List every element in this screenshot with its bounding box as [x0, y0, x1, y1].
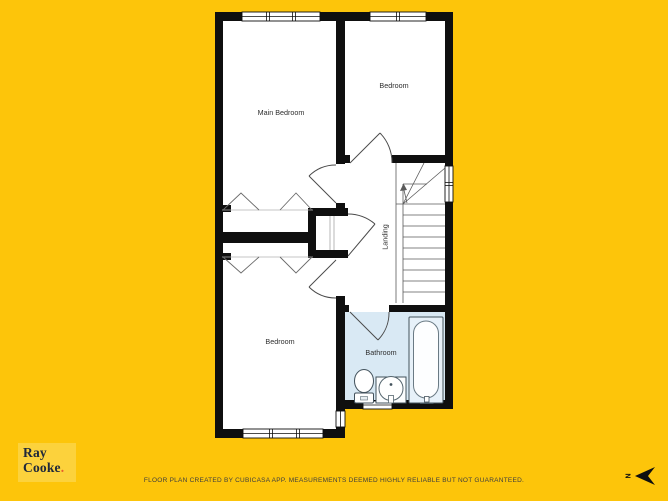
label-main-bedroom: Main Bedroom	[258, 108, 305, 117]
label-bathroom: Bathroom	[365, 348, 396, 357]
logo-dot: .	[61, 460, 65, 475]
page-background: Main Bedroom Bedroom Landing Bedroom Bat…	[0, 0, 668, 501]
window-main-bedroom	[242, 12, 320, 21]
window-bedroom-top	[370, 12, 426, 21]
bathtub-icon	[409, 317, 443, 404]
window-bedroom-side	[336, 411, 345, 427]
logo-line2: Cooke	[23, 460, 61, 475]
window-landing	[445, 166, 453, 202]
label-bedroom-bottom: Bedroom	[265, 337, 294, 346]
label-landing: Landing	[381, 224, 390, 250]
sink-icon	[376, 377, 406, 404]
disclaimer-text: FLOOR PLAN CREATED BY CUBICASA APP. MEAS…	[0, 477, 668, 484]
floor-plan: Main Bedroom Bedroom Landing Bedroom Bat…	[0, 0, 668, 501]
window-bedroom-bottom	[243, 429, 323, 438]
label-bedroom-top: Bedroom	[379, 81, 408, 90]
toilet-icon	[355, 370, 374, 404]
logo-line1: Ray	[23, 445, 47, 460]
